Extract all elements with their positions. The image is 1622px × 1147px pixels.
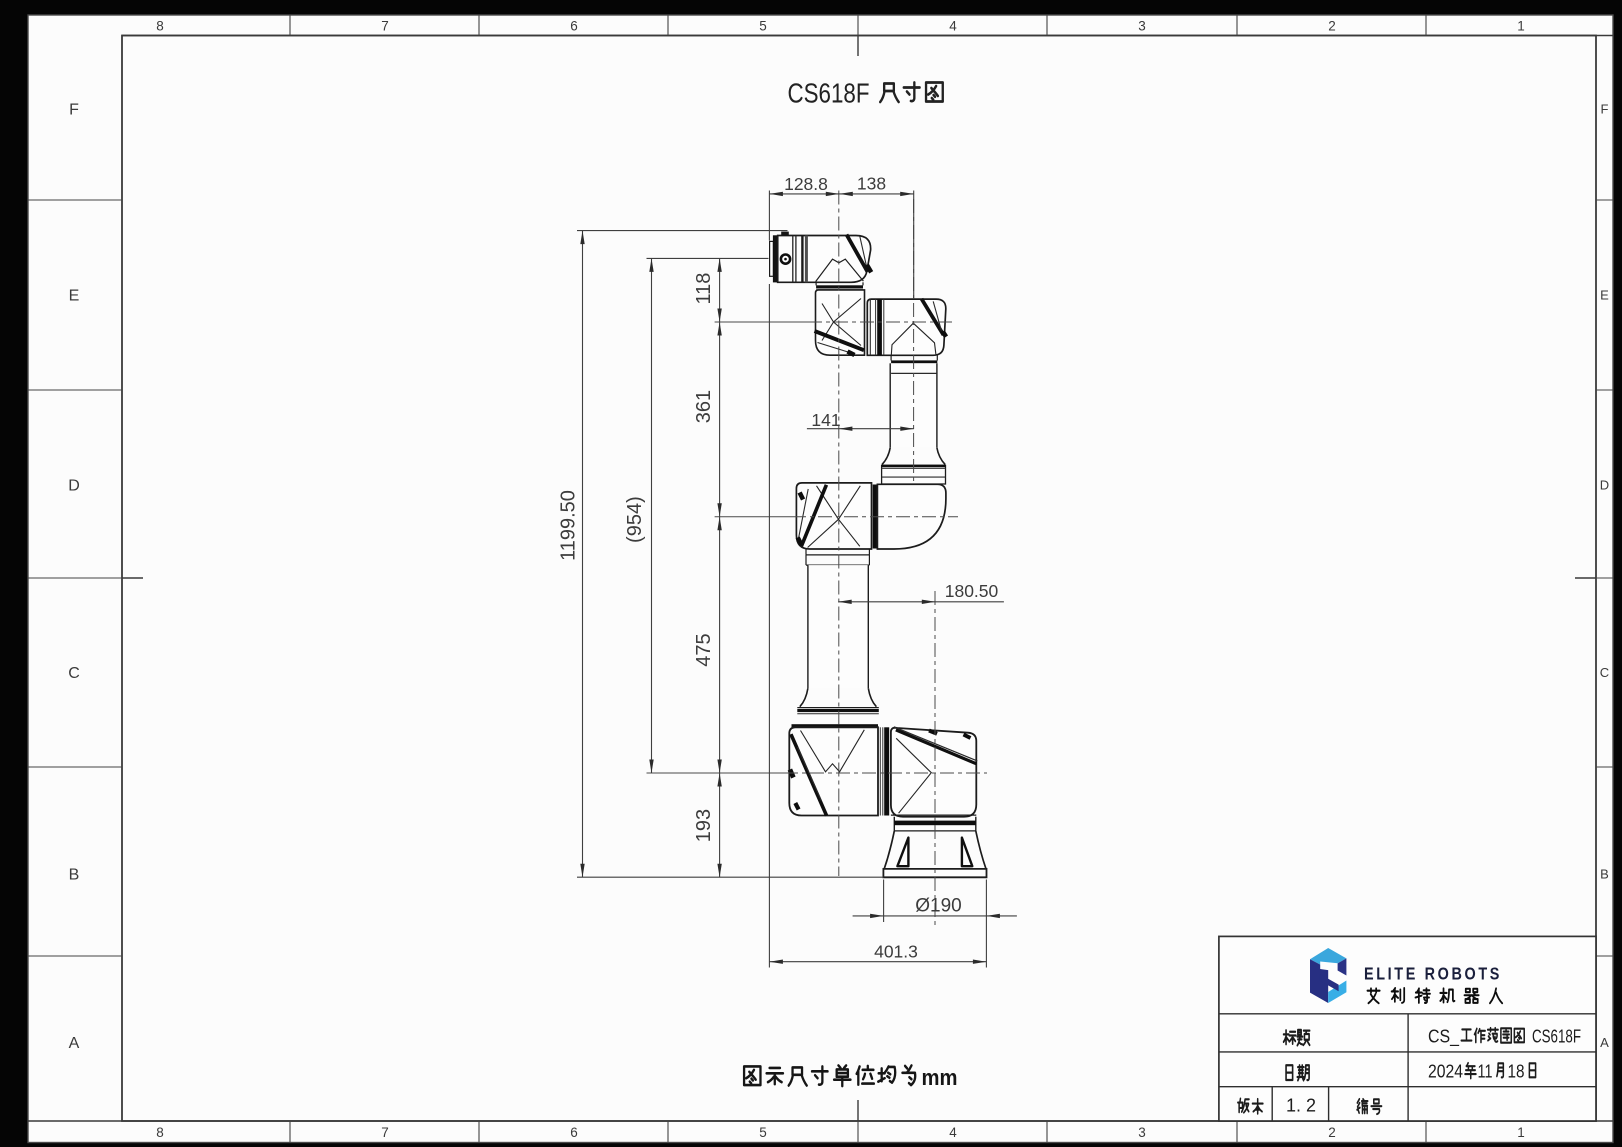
svg-text:E: E	[1600, 288, 1609, 303]
svg-text:CS618F: CS618F	[1532, 1027, 1581, 1047]
svg-text:8: 8	[156, 1125, 164, 1140]
svg-text:6: 6	[570, 19, 578, 34]
svg-text:5: 5	[759, 19, 767, 34]
svg-text:mm: mm	[922, 1065, 958, 1090]
svg-text:18: 18	[1508, 1062, 1525, 1082]
svg-text:E: E	[69, 288, 80, 305]
svg-text:Ø190: Ø190	[915, 896, 961, 917]
svg-text:1: 1	[1517, 19, 1525, 34]
svg-text:4: 4	[949, 1125, 957, 1140]
svg-text:5: 5	[759, 1125, 767, 1140]
svg-text:F: F	[1601, 102, 1609, 117]
svg-text:11: 11	[1478, 1062, 1493, 1082]
svg-text:8: 8	[156, 19, 164, 34]
svg-text:128.8: 128.8	[784, 174, 828, 194]
svg-text:B: B	[69, 867, 80, 884]
svg-text:B: B	[1600, 867, 1609, 882]
svg-text:D: D	[1600, 478, 1609, 493]
svg-text:1. 2: 1. 2	[1286, 1096, 1316, 1116]
svg-text:1199.50: 1199.50	[558, 490, 580, 561]
svg-text:D: D	[68, 478, 80, 495]
svg-text:6: 6	[570, 1125, 578, 1140]
svg-text:2: 2	[1328, 19, 1336, 34]
svg-text:CS_: CS_	[1428, 1027, 1460, 1048]
svg-text:475: 475	[693, 633, 715, 666]
svg-text:A: A	[1600, 1035, 1609, 1050]
svg-text:A: A	[69, 1035, 80, 1052]
svg-text:180.50: 180.50	[945, 581, 999, 601]
svg-text:118: 118	[693, 273, 715, 305]
svg-text:CS618F: CS618F	[788, 78, 870, 109]
svg-text:C: C	[1600, 665, 1609, 680]
svg-text:7: 7	[381, 19, 389, 34]
svg-text:1: 1	[1517, 1125, 1525, 1140]
svg-text:3: 3	[1138, 19, 1146, 34]
svg-text:F: F	[69, 102, 79, 119]
svg-text:7: 7	[381, 1125, 389, 1140]
svg-text:2024: 2024	[1428, 1062, 1463, 1082]
svg-text:ELITE ROBOTS: ELITE ROBOTS	[1364, 964, 1502, 984]
svg-text:4: 4	[949, 19, 957, 34]
svg-text:141: 141	[811, 410, 840, 430]
svg-text:C: C	[68, 665, 80, 682]
svg-text:138: 138	[857, 174, 886, 194]
svg-text:401.3: 401.3	[874, 942, 918, 962]
svg-text:3: 3	[1138, 1125, 1146, 1140]
svg-text:2: 2	[1328, 1125, 1336, 1140]
svg-text:(954): (954)	[624, 496, 646, 543]
svg-text:361: 361	[693, 390, 715, 423]
svg-text:193: 193	[693, 809, 715, 842]
